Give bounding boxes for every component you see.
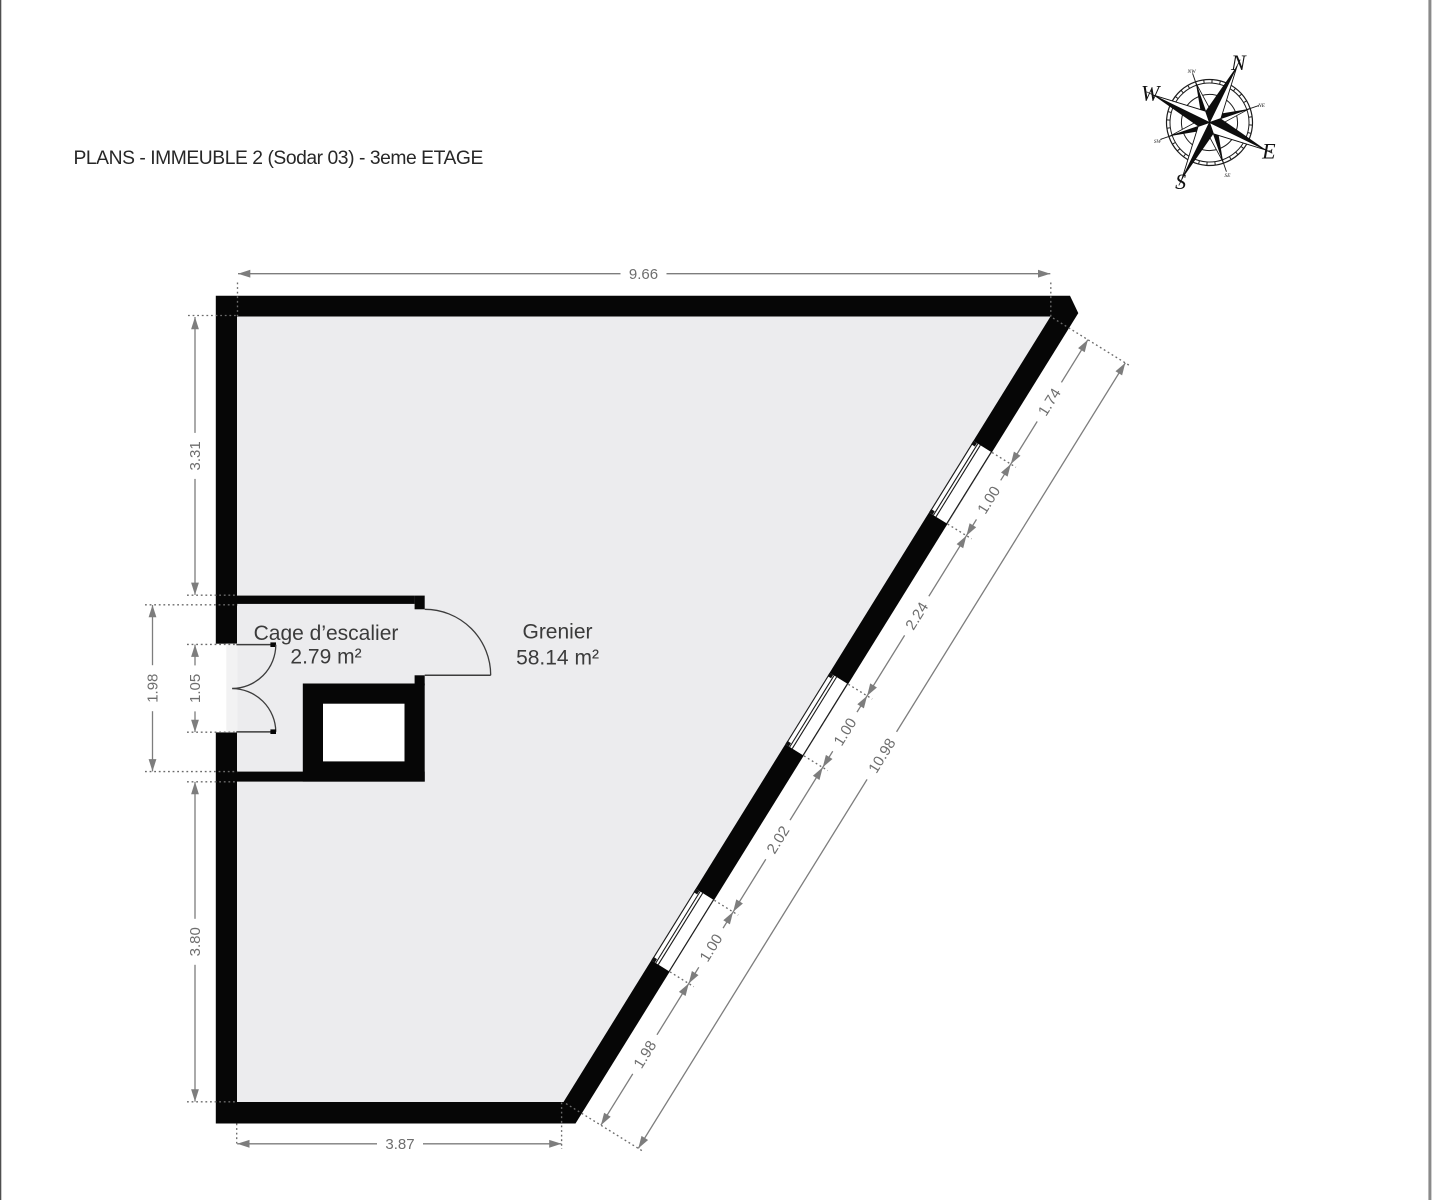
svg-text:SE: SE <box>1224 173 1231 179</box>
svg-text:3.87: 3.87 <box>385 1136 414 1153</box>
svg-text:Grenier: Grenier <box>522 621 592 644</box>
svg-text:Cage d’escalier: Cage d’escalier <box>254 622 399 645</box>
svg-text:SW: SW <box>1154 139 1162 145</box>
svg-text:3.31: 3.31 <box>187 441 204 470</box>
svg-text:NE: NE <box>1257 103 1266 109</box>
svg-text:NW: NW <box>1186 69 1196 75</box>
svg-text:E: E <box>1261 138 1276 163</box>
svg-text:W: W <box>1141 81 1161 106</box>
svg-text:58.14 m²: 58.14 m² <box>516 646 599 669</box>
svg-text:3.80: 3.80 <box>187 927 204 956</box>
svg-text:2.79 m²: 2.79 m² <box>290 646 361 669</box>
svg-text:S: S <box>1175 169 1186 194</box>
svg-text:1.98: 1.98 <box>145 674 162 703</box>
svg-text:9.66: 9.66 <box>629 266 658 283</box>
svg-text:10.98: 10.98 <box>865 736 899 777</box>
svg-text:PLANS - IMMEUBLE 2 (Sodar 03): PLANS - IMMEUBLE 2 (Sodar 03) - 3eme ETA… <box>74 148 484 169</box>
svg-text:N: N <box>1230 50 1247 75</box>
svg-text:1.05: 1.05 <box>187 674 204 703</box>
